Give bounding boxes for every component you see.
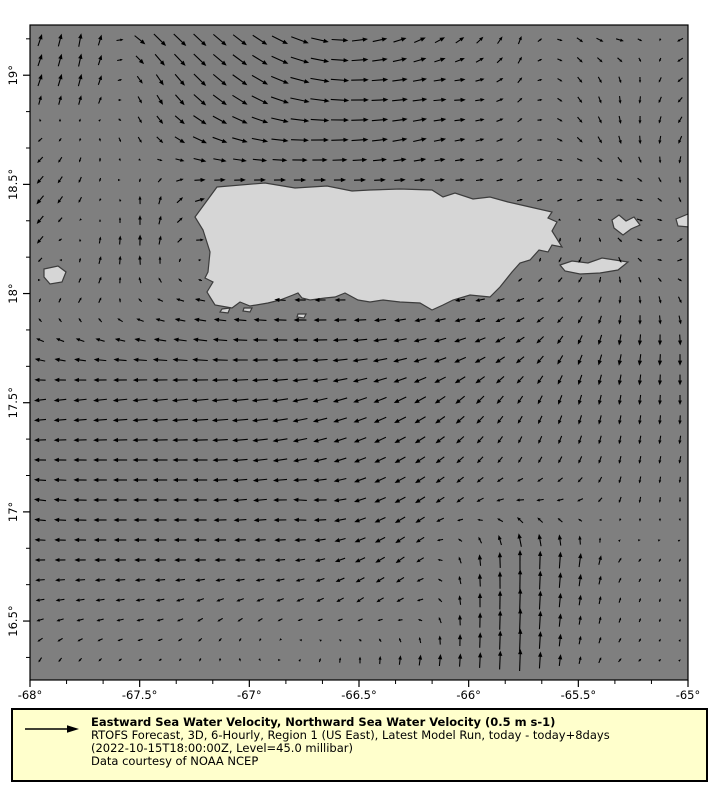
y-tick-label: 16.5° (6, 605, 20, 636)
x-tick-label: -66.5° (341, 688, 377, 702)
x-tick-label: -68° (18, 688, 43, 702)
y-tick-label: 17.5° (6, 387, 20, 418)
legend-text-block: Eastward Sea Water Velocity, Northward S… (91, 710, 610, 768)
y-tick-label: 18° (6, 283, 20, 303)
x-tick-label: -67° (237, 688, 262, 702)
y-tick-label: 18.5° (6, 169, 20, 200)
x-axis: -68°-67.5°-67°-66.5°-66°-65.5°-65° (18, 680, 701, 702)
legend-box: Eastward Sea Water Velocity, Northward S… (11, 708, 708, 782)
x-tick-label: -65° (676, 688, 701, 702)
islet-sw1-landmass (220, 308, 230, 313)
legend-credit-line: Data courtesy of NOAA NCEP (91, 755, 610, 768)
sea-water-velocity-map-figure: -68°-67.5°-67°-66.5°-66°-65.5°-65°19°18.… (0, 0, 720, 800)
legend-reference-arrow-icon (23, 721, 81, 737)
y-tick-label: 19° (6, 65, 20, 85)
islet-sw2-landmass (243, 308, 252, 312)
y-tick-label: 17° (6, 502, 20, 522)
x-tick-label: -65.5° (561, 688, 597, 702)
y-axis: 19°18.5°18°17.5°17°16.5° (6, 39, 30, 658)
x-tick-label: -67.5° (122, 688, 158, 702)
map-canvas: -68°-67.5°-67°-66.5°-66°-65.5°-65°19°18.… (0, 0, 720, 800)
x-tick-label: -66° (456, 688, 481, 702)
islet-s3-landmass (297, 314, 306, 318)
